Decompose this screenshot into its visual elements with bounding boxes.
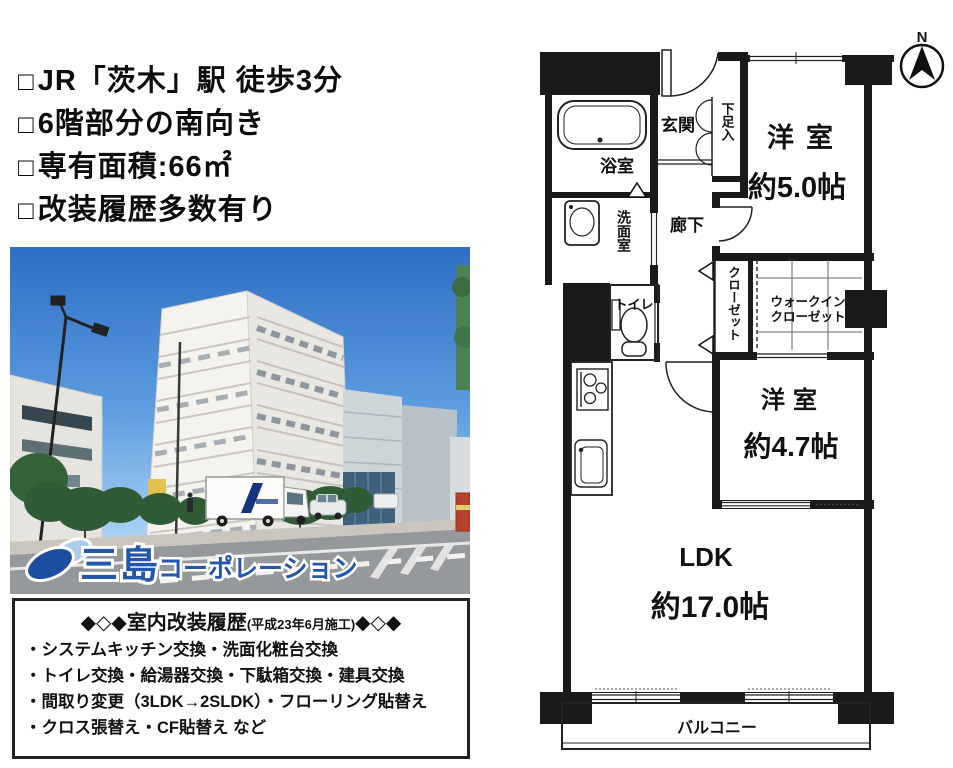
diamond-icons: ◆◇◆: [81, 612, 127, 634]
label-bedroom2: 洋室: [761, 386, 825, 414]
label-bath: 浴室: [600, 156, 634, 176]
label-toilet: トイレ: [614, 297, 653, 312]
renovation-item: ・トイレ交換・給湯器交換・下駄箱交換・建具交換: [25, 663, 457, 689]
highlight-item: □専有面積:66㎡: [18, 146, 343, 189]
red-vehicle: [456, 493, 470, 531]
building-photo: 三島 コーポレーション: [10, 247, 470, 594]
square-bullet-icon: □: [18, 109, 35, 139]
square-bullet-icon: □: [18, 152, 35, 182]
floorplan: N 玄関 下足入 浴室 洗面室 廊下 トイレ クローゼット ウォークイン クロー…: [528, 25, 953, 768]
renovation-item: ・クロス張替え・CF貼替え など: [25, 715, 457, 741]
diamond-icons: ◆◇◆: [355, 612, 401, 634]
bathtub: [558, 101, 646, 149]
label-closet: クローゼット: [726, 266, 740, 341]
label-washroom: 洗面室: [616, 209, 632, 252]
renovation-items: ・システムキッチン交換・洗面化粧台交換 ・トイレ交換・給湯器交換・下駄箱交換・建…: [25, 637, 457, 741]
label-bedroom2-size: 約4.7帖: [744, 430, 839, 462]
label-wic-line1: ウォークイン: [770, 295, 845, 309]
renovation-title-note: (平成23年6月施工): [247, 617, 355, 632]
pedestrian: [187, 493, 193, 513]
highlight-text: 専有面積:66㎡: [38, 151, 233, 183]
label-bedroom1: 洋室: [767, 122, 845, 153]
label-hall: 廊下: [670, 215, 704, 235]
washbasin: [565, 201, 599, 245]
label-balcony: バルコニー: [677, 719, 757, 737]
label-wic-line2: クローゼット: [770, 309, 845, 324]
kitchen-counter: [571, 362, 612, 495]
highlight-list: □JR「茨木」駅 徒歩3分 □6階部分の南向き □専有面積:66㎡ □改装履歴多…: [18, 60, 343, 232]
logo-text-sub: コーポレーション: [158, 554, 358, 583]
logo-text-main: 三島: [80, 545, 160, 587]
white-van: [374, 494, 398, 508]
renovation-title: ◆◇◆室内改装履歴(平成23年6月施工)◆◇◆: [25, 606, 457, 635]
property-flyer: □JR「茨木」駅 徒歩3分 □6階部分の南向き □専有面積:66㎡ □改装履歴多…: [0, 0, 953, 768]
renovation-item: ・システムキッチン交換・洗面化粧台交換: [25, 637, 457, 663]
label-ldk: LDK: [679, 542, 733, 572]
renovation-item: ・間取り変更（3LDK→2SLDK）・フローリング貼替え: [25, 689, 457, 715]
renovation-title-text: 室内改装履歴: [127, 612, 247, 634]
renovation-history-box: ◆◇◆室内改装履歴(平成23年6月施工)◆◇◆ ・システムキッチン交換・洗面化粧…: [12, 598, 470, 759]
label-bedroom1-size: 約5.0帖: [748, 170, 846, 204]
highlight-text: JR「茨木」駅 徒歩3分: [38, 65, 343, 97]
label-ldk-size: 約17.0帖: [651, 591, 769, 624]
highlight-item: □JR「茨木」駅 徒歩3分: [18, 60, 343, 103]
square-bullet-icon: □: [18, 66, 35, 96]
compass-label: N: [917, 29, 928, 46]
label-genkan: 玄関: [661, 115, 695, 135]
highlight-item: □6階部分の南向き: [18, 103, 343, 146]
highlight-item: □改装履歴多数有り: [18, 189, 343, 232]
highlight-text: 改装履歴多数有り: [38, 194, 278, 226]
square-bullet-icon: □: [18, 195, 35, 225]
highlight-text: 6階部分の南向き: [38, 108, 265, 140]
label-shoe-storage: 下足入: [720, 102, 735, 141]
